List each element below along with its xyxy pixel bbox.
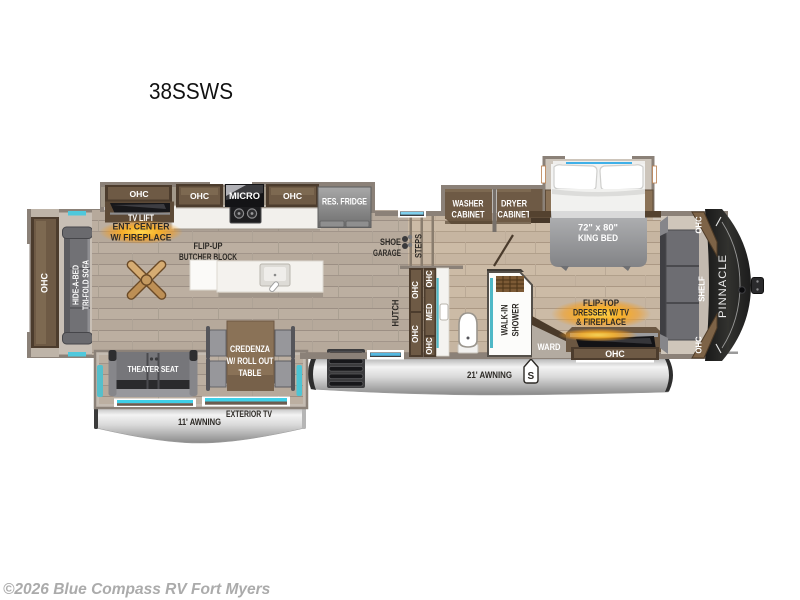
svg-text:FLIP-UP: FLIP-UP: [194, 241, 223, 251]
svg-text:OHC: OHC: [411, 325, 420, 343]
svg-text:38SSWS: 38SSWS: [149, 78, 233, 104]
svg-text:SHOE: SHOE: [380, 237, 401, 247]
svg-text:DRYER: DRYER: [501, 199, 527, 209]
svg-text:SHOWER: SHOWER: [510, 303, 520, 337]
svg-text:OHC: OHC: [425, 337, 434, 355]
svg-text:THEATER SEAT: THEATER SEAT: [128, 364, 180, 374]
svg-text:21' AWNING: 21' AWNING: [467, 370, 512, 381]
svg-text:W/ FIREPLACE: W/ FIREPLACE: [111, 233, 172, 243]
svg-text:W/ ROLL OUT: W/ ROLL OUT: [227, 356, 274, 366]
svg-text:MED: MED: [425, 303, 434, 321]
svg-text:GARAGE: GARAGE: [373, 248, 401, 258]
svg-text:S: S: [528, 371, 535, 382]
svg-text:OHC: OHC: [411, 281, 420, 299]
svg-text:EXTERIOR TV: EXTERIOR TV: [226, 409, 272, 419]
svg-text:TABLE: TABLE: [239, 368, 262, 378]
svg-text:OHC: OHC: [695, 216, 704, 234]
svg-text:©2026 Blue Compass RV Fort Mye: ©2026 Blue Compass RV Fort Myers: [3, 581, 271, 598]
svg-text:DRESSER W/ TV: DRESSER W/ TV: [573, 308, 629, 318]
svg-text:OHC: OHC: [190, 191, 209, 201]
svg-text:SHELF: SHELF: [698, 276, 707, 302]
svg-text:FLIP-TOP: FLIP-TOP: [583, 298, 619, 308]
svg-text:OHC: OHC: [283, 191, 302, 201]
svg-text:CREDENZA: CREDENZA: [230, 344, 270, 354]
svg-text:PINNACLE: PINNACLE: [717, 254, 729, 318]
svg-text:OHC: OHC: [39, 273, 49, 294]
svg-text:WASHER: WASHER: [453, 199, 484, 209]
svg-text:ENT. CENTER: ENT. CENTER: [113, 222, 170, 232]
svg-text:& FIREPLACE: & FIREPLACE: [576, 317, 626, 327]
svg-text:KING BED: KING BED: [578, 233, 618, 244]
svg-text:STEPS: STEPS: [413, 234, 423, 258]
svg-text:WALK-IN: WALK-IN: [499, 305, 509, 336]
svg-text:WARD: WARD: [538, 342, 561, 352]
svg-text:OHC: OHC: [695, 336, 704, 354]
svg-text:OHC: OHC: [425, 270, 434, 288]
svg-text:OHC: OHC: [129, 189, 148, 199]
svg-text:CABINET: CABINET: [452, 210, 485, 220]
svg-text:HUTCH: HUTCH: [390, 300, 400, 327]
svg-text:MICRO: MICRO: [229, 191, 260, 201]
svg-text:OHC: OHC: [605, 349, 625, 359]
svg-text:72" x 80": 72" x 80": [578, 223, 618, 234]
svg-text:RES. FRIDGE: RES. FRIDGE: [322, 197, 367, 207]
svg-text:HIDE-A-BED: HIDE-A-BED: [72, 265, 81, 305]
svg-text:11' AWNING: 11' AWNING: [178, 417, 221, 428]
svg-text:TRI-FOLD SOFA: TRI-FOLD SOFA: [82, 260, 91, 310]
svg-text:CABINET: CABINET: [498, 210, 531, 220]
